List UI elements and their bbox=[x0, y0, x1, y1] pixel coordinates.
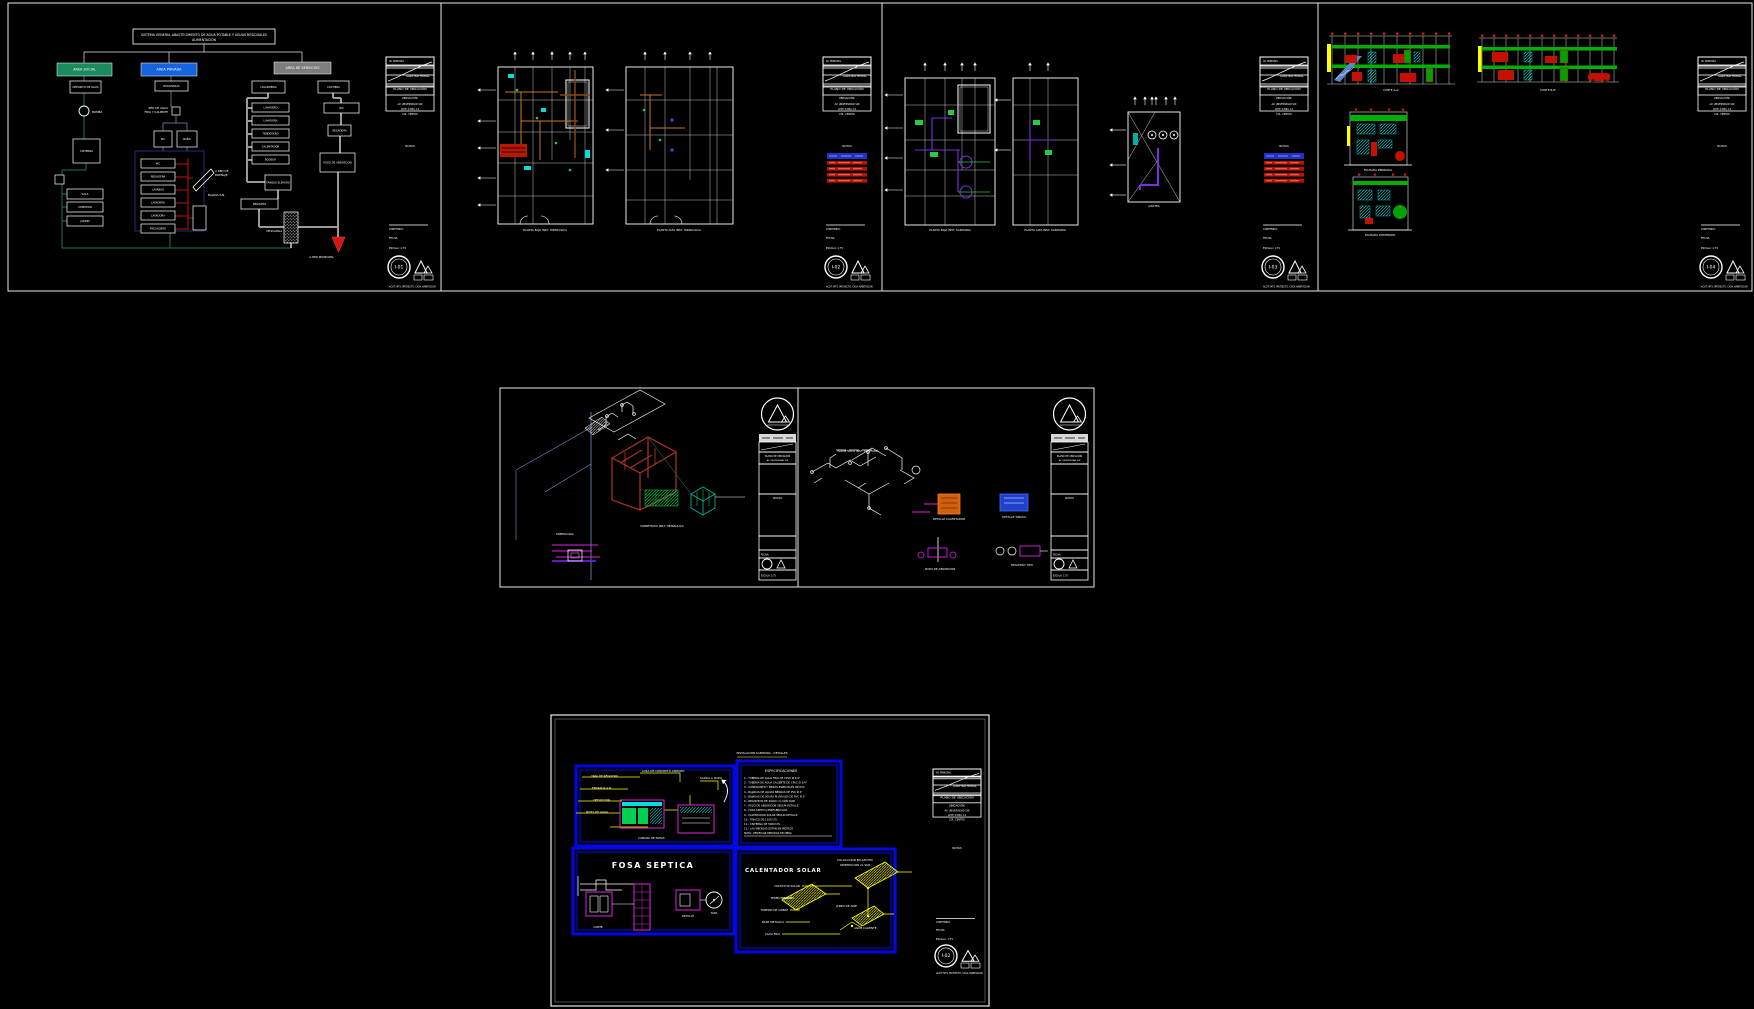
annotation-label: CORTE A-A' bbox=[1383, 88, 1399, 92]
annotation-label: TERMOTANQUE bbox=[769, 896, 792, 900]
annotation-label: A RED MUNICIPAL bbox=[309, 255, 334, 259]
flowchart-node-label: LAVADORA bbox=[151, 214, 165, 218]
flowchart-node-label: WC bbox=[156, 162, 161, 166]
annotation-label: FRIA Y CALIENTE bbox=[145, 110, 169, 114]
tb-firma: ACOT: MTS. PROYECTO: CASA HABITACION bbox=[1701, 286, 1748, 289]
flowchart-node-label: FREGADERO bbox=[150, 227, 166, 231]
annotation-label: LOSA DE CONCRETO ARMADO bbox=[642, 769, 685, 773]
specs-title: ESPECIFICACIONES bbox=[765, 769, 797, 773]
flowchart-node-label: LAVANDERIA bbox=[260, 85, 277, 89]
sheet-number: I-03 bbox=[1269, 265, 1278, 271]
tiny-label: LOTE 4 MZA. 12 bbox=[401, 108, 420, 111]
annotation-label: DETALLE CALENTADOR bbox=[933, 517, 965, 521]
cad-canvas: SISTEMA GENERAL ABASTECIMIENTO DE AGUA P… bbox=[0, 0, 1754, 1009]
flowchart-node-label: SALA bbox=[82, 192, 89, 196]
tiny-label: AV. UNIVERSIDAD S/N bbox=[1059, 459, 1081, 462]
tiny-label: LOTE 4 MZA. 12 bbox=[1275, 108, 1294, 111]
tb-plano-label: PLANO DE UBICACIÓN bbox=[765, 455, 791, 458]
tiny-label: FECHA: bbox=[1053, 554, 1061, 557]
red-fixture bbox=[500, 144, 527, 157]
tb-escala: ESCALA: 1:75 bbox=[1263, 246, 1280, 250]
tiny-label: AV. UNIVERSIDAD S/N bbox=[835, 103, 860, 106]
calentador-title: CALENTADOR SOLAR bbox=[745, 868, 822, 874]
annotation-label: SALIDA A POZO bbox=[700, 776, 723, 780]
legend-table bbox=[645, 490, 678, 506]
spec-line: 9.- CALENTADOR SOLAR SEGUN DETALLE bbox=[744, 813, 798, 817]
annotation-label: CORTE bbox=[593, 925, 603, 929]
tiny-label: COL. CENTRO bbox=[1276, 113, 1292, 116]
sheet-number: I-04 bbox=[1707, 265, 1716, 271]
tiny-label: FECHA: bbox=[761, 554, 769, 557]
tb-fecha: FECHA: bbox=[1263, 236, 1272, 240]
tb-fecha: FECHA: bbox=[826, 236, 835, 240]
tb-escala: ESCALA: 1:75 bbox=[936, 937, 953, 941]
tb-notas: NOTAS bbox=[773, 496, 782, 500]
tb-escala: ESCALA: 1:75 bbox=[389, 246, 406, 250]
svg-text:SISTEMA GENERAL ABASTECIMIENTO: SISTEMA GENERAL ABASTECIMIENTO DE AGUA P… bbox=[141, 33, 267, 37]
flowchart-areas: AREA SOCIALAREA PRIVADAAREA DE SERVICIOS bbox=[57, 62, 331, 76]
flowchart-node-label: WC bbox=[339, 106, 344, 110]
annotation-label: BASE METALICA bbox=[762, 920, 784, 924]
flowchart-node-label: REGADERA bbox=[151, 175, 166, 179]
flowchart-node-label: JARDIN bbox=[80, 219, 90, 223]
spec-line: 6.- REGISTROS DE 40x60 cm CON TAPA bbox=[744, 799, 795, 803]
tb-fecha: FECHA: bbox=[1701, 236, 1710, 240]
flowchart-node-label: COMEDOR bbox=[78, 205, 92, 209]
spec-line: NOTA: VERIFICAR MEDIDAS EN OBRA bbox=[744, 831, 792, 835]
tb-fecha: FECHA: bbox=[936, 928, 945, 932]
canvas-background bbox=[0, 0, 1754, 1009]
sheet-number: I-02 bbox=[942, 953, 951, 959]
tiny-label: COL. CENTRO bbox=[1714, 113, 1730, 116]
croquis-label: CARRETERA FEDERAL bbox=[843, 75, 867, 78]
croquis-label: CARRETERA FEDERAL bbox=[1280, 75, 1304, 78]
tb-contenido: CONTENIDO: bbox=[936, 921, 951, 924]
flowchart-node-label: LAVADERO bbox=[151, 201, 165, 205]
annotation-label: PLANTA BAJA INST. SANITARIA bbox=[929, 228, 971, 232]
annotation-label: DETALLE bbox=[682, 914, 694, 918]
flowchart-node-label: LAVABOS bbox=[152, 188, 164, 192]
detail-tinaco bbox=[1000, 494, 1028, 511]
tiny-label: LOTE 4 MZA. 12 bbox=[838, 108, 857, 111]
tiny-label: COL. CENTRO bbox=[839, 113, 855, 116]
spec-line: 12.- LAS MEDIDAS ESTAN EN METROS bbox=[744, 827, 793, 831]
tb-ubicacion: UBICACIÓN: bbox=[1714, 95, 1731, 100]
annotation-label: AGUA CALIENTE bbox=[854, 926, 877, 930]
tb-ubicacion: UBICACIÓN: bbox=[1276, 95, 1293, 100]
tiny-label: COL. CENTRO bbox=[402, 113, 418, 116]
svg-text:ALIMENTACIÓN: ALIMENTACIÓN bbox=[192, 37, 217, 42]
annotation-label: BAJADA A.N. bbox=[208, 193, 225, 197]
flowchart-node bbox=[193, 206, 206, 230]
tb-escala: ESCALA: 1:75 bbox=[826, 246, 843, 250]
annotation-label: COLECTOR SOLAR bbox=[774, 884, 800, 888]
tiny-label: ESCALA: 1:75 bbox=[761, 575, 776, 578]
tb-firma: ACOT: MTS. PROYECTO: CASA HABITACION bbox=[389, 286, 436, 289]
tiny-label: AV. UNIVERSIDAD S/N bbox=[945, 810, 970, 813]
annotation-label: PLANTA BAJA INST. HIDRAULICA bbox=[523, 228, 567, 232]
flowchart-node-label: WC bbox=[161, 137, 166, 141]
flowchart-node-label: CALENTADOR bbox=[262, 145, 280, 149]
tb-firma: ACOT: MTS. PROYECTO: CASA HABITACION bbox=[826, 286, 873, 289]
tb-notas: NOTAS bbox=[842, 144, 852, 148]
flowchart-node bbox=[55, 175, 64, 184]
annotation-label: DESCARGA bbox=[266, 229, 282, 233]
annotation-label: CORTE B-B' bbox=[1540, 88, 1556, 92]
croquis-label: AV. PRINCIPAL bbox=[389, 60, 405, 63]
tb-contenido: CONTENIDO: bbox=[1701, 228, 1716, 231]
annotation-label: PLANTA ALTA INST. HIDRAULICA bbox=[657, 228, 701, 232]
tb-escala: ESCALA: 1:75 bbox=[1701, 246, 1718, 250]
annotation-label: DETALLE TINACO bbox=[1002, 515, 1027, 519]
flowchart-node-label: RECAMARAS bbox=[163, 84, 180, 88]
tiny-label: LOTE 4 MZA. 12 bbox=[1713, 108, 1732, 111]
filter-box-icon bbox=[284, 212, 298, 243]
tiny-label: AV. UNIVERSIDAD S/N bbox=[1710, 103, 1735, 106]
tb-notas: NOTAS bbox=[1279, 144, 1289, 148]
annotation-label: TUBERIA DE COBRE bbox=[759, 908, 788, 912]
croquis-label: AV. PRINCIPAL bbox=[1701, 60, 1717, 63]
tb-ubicacion: UBICACIÓN: bbox=[402, 95, 419, 100]
croquis-label: AV. PRINCIPAL bbox=[826, 60, 842, 63]
annotation-label: DRENAJE bbox=[215, 173, 228, 177]
sheet-number: I-02 bbox=[832, 265, 841, 271]
tb-notas: NOTAS bbox=[952, 846, 962, 850]
annotation-label: CAMARA DE NATAS bbox=[638, 836, 665, 840]
flowchart-node-label: DEPOSITO DE AGUA bbox=[73, 85, 99, 89]
spec-line: 3.- CONEXIONES Y PIEZAS ESPECIALES DE PV… bbox=[744, 785, 805, 789]
annotation-label: DEFLECTOR bbox=[593, 798, 610, 802]
tb-plano-label: PLANO DE UBICACIÓN bbox=[1057, 455, 1083, 458]
annotation-label: JARRO DE AIRE bbox=[835, 904, 857, 908]
annotation-label: POZO DE ABSORCION bbox=[925, 567, 955, 571]
sheet-number: I-01 bbox=[395, 265, 404, 271]
annotation-label: FACHADA POSTERIOR bbox=[1365, 233, 1395, 237]
tiny-label: AV. UNIVERSIDAD S/N bbox=[767, 459, 789, 462]
croquis-label: CARRETERA FEDERAL bbox=[1718, 75, 1742, 78]
annotation-label: COLOCACION EN AZOTEA bbox=[837, 858, 873, 862]
annotation-label: PLANTA ALTA INST. SANITARIA bbox=[1024, 228, 1066, 232]
spec-line: 8.- FOSA SEPTICA PREFABRICADA bbox=[744, 808, 788, 812]
tiny-label: AV. UNIVERSIDAD S/N bbox=[1272, 103, 1297, 106]
annotation-label: AZOTEA bbox=[1148, 204, 1160, 208]
tb-ubicacion: UBICACIÓN: bbox=[839, 95, 856, 100]
tiny-label: AV. UNIVERSIDAD S/N bbox=[398, 103, 423, 106]
flowchart-node-label: LAVADORA bbox=[263, 119, 277, 123]
flowchart-node bbox=[172, 107, 180, 115]
tb-firma: ACOT: MTS. PROYECTO: CASA HABITACION bbox=[936, 972, 983, 975]
annotation-label: ENTRADA A.N. bbox=[592, 786, 612, 790]
annotation-label: ISOMETRICO INST. SANITARIA bbox=[837, 449, 878, 453]
flowchart-node-label: LAVADERO bbox=[264, 106, 278, 110]
tb-contenido: CONTENIDO: bbox=[389, 228, 404, 231]
annotation-label: FACHADA PRINCIPAL bbox=[1364, 168, 1393, 172]
flowchart-area-label: AREA PRIVADA bbox=[157, 68, 183, 72]
tb-notas: NOTAS bbox=[1065, 496, 1074, 500]
flowchart-node-label: COCHERA bbox=[327, 85, 340, 89]
annotation-label: REGISTRO TIPO bbox=[1011, 563, 1033, 567]
flowchart-node-label: REGADERA bbox=[332, 129, 347, 133]
annotation-label: BOMBA bbox=[92, 110, 102, 114]
tiny-label: COL. CENTRO bbox=[949, 819, 965, 822]
annotation-label: AGUA FRIA bbox=[765, 932, 780, 936]
flowchart-node-label: BODEGA bbox=[265, 158, 276, 162]
annotation-label: INSTALACION SANITARIA - DETALLES bbox=[736, 751, 787, 755]
croquis-label: AV. PRINCIPAL bbox=[1263, 60, 1279, 63]
spec-line: 11.- CISTERNA DE 5000 LTS. bbox=[744, 822, 781, 826]
tb-notas: NOTAS bbox=[1717, 144, 1727, 148]
flowchart-node-label: TENDEDERO bbox=[262, 132, 278, 136]
spec-line: 10.- TINACO DE 1100 LTS. bbox=[744, 817, 778, 821]
flowchart-node-label: POZO DE ABSORCION bbox=[323, 161, 351, 165]
croquis-label: CARRETERA FEDERAL bbox=[406, 75, 430, 78]
flowchart-node-label: TANQUE ELEVADO bbox=[266, 181, 290, 185]
flowchart-node-label: CISTERNA bbox=[80, 149, 93, 153]
tb-contenido: CONTENIDO: bbox=[1263, 228, 1278, 231]
tiny-label: ESCALA: 1:75 bbox=[1053, 575, 1068, 578]
annotation-label: TAPA DE REGISTRO bbox=[590, 774, 619, 778]
flowchart-area-label: AREA DE SERVICIOS bbox=[285, 66, 319, 70]
annotation-label: ORIENTACION AL SUR bbox=[840, 863, 870, 867]
annotation-label: ISOMETRICO INST. HIDRAULICA bbox=[640, 524, 684, 528]
detail-heater bbox=[938, 494, 960, 514]
annotation-label: SIMBOLOGIA bbox=[556, 532, 574, 536]
tb-fecha: FECHA: bbox=[389, 236, 398, 240]
tb-firma: ACOT: MTS. PROYECTO: CASA HABITACION bbox=[1263, 286, 1310, 289]
tb-contenido: CONTENIDO: bbox=[826, 228, 841, 231]
flowchart-area-label: AREA SOCIAL bbox=[73, 68, 96, 72]
spec-line: 7.- POZO DE ABSORCION SEGUN DETALLE bbox=[744, 804, 799, 808]
fosa-title: FOSA SEPTICA bbox=[612, 861, 695, 870]
tb-notas: NOTAS bbox=[405, 144, 415, 148]
flowchart-node-label: REGISTRO bbox=[253, 202, 266, 206]
annotation-label: TAPA bbox=[710, 911, 718, 915]
annotation-label: NIVEL DE AGUA bbox=[586, 810, 608, 814]
croquis-label: AV. PRINCIPAL bbox=[936, 771, 952, 774]
